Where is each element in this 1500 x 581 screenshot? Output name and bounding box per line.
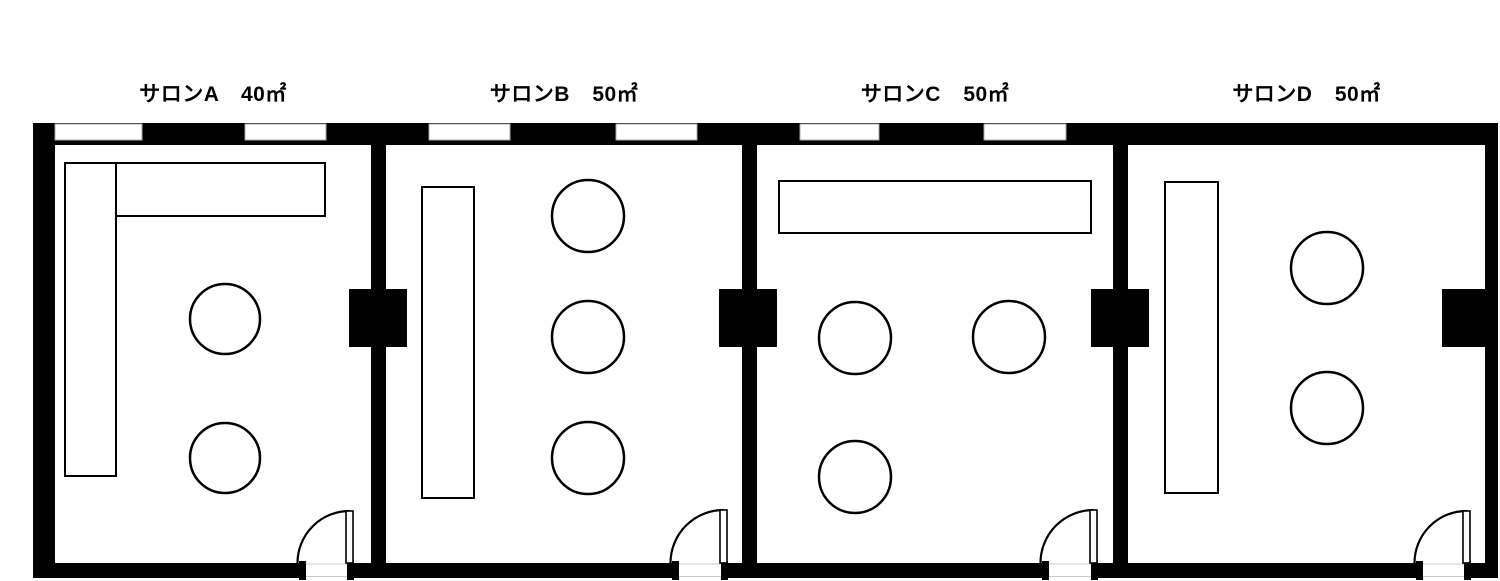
door-swing-arc [1415,511,1467,563]
counter-table [779,181,1091,233]
door-leaf [1090,510,1097,563]
round-table [1291,232,1363,304]
window [55,124,142,140]
round-table [1291,372,1363,444]
floor-plan-page: サロンA 40㎡ サロンB 50㎡ サロンC 50㎡ サロンD 50㎡ [0,0,1500,581]
door-jamb [347,561,354,580]
counter-table [65,163,116,476]
partition-connector [1091,289,1149,347]
partition-connector [349,289,407,347]
room-name: サロンA [139,83,218,106]
room-label-salon-b: サロンB 50㎡ [490,82,638,108]
door-jamb [1042,561,1049,580]
door-jamb [672,561,679,580]
room-name: サロンB [490,83,570,106]
room-label-salon-c: サロンC 50㎡ [861,82,1009,108]
door-jamb [721,561,728,580]
round-table [552,301,624,373]
door-jamb [299,561,306,580]
door-swing-arc [1041,510,1094,563]
round-table [190,284,260,354]
window [984,124,1066,140]
round-table [552,180,624,252]
door-swing-arc [298,511,350,563]
outer-wall-right [1485,123,1498,578]
room-name: サロンC [861,83,941,106]
door-jamb [1091,561,1098,580]
outer-wall-bottom [33,563,1498,578]
round-table [819,302,891,374]
door-leaf [720,510,727,563]
door-leaf [346,511,353,563]
window [245,124,326,140]
door-swing-arc [671,510,724,563]
partition-connector [1442,289,1485,347]
round-table [819,441,891,513]
counter-table [116,163,325,216]
room-area: 40㎡ [241,83,287,106]
room-area: 50㎡ [592,83,638,106]
round-table [190,423,260,493]
door-jamb [1416,561,1423,580]
window [429,124,510,140]
counter-table [422,187,474,498]
room-area: 50㎡ [963,83,1009,106]
door-jamb [1464,561,1471,580]
divider-wall [742,145,757,563]
window [616,124,697,140]
round-table [973,301,1045,373]
room-label-salon-a: サロンA 40㎡ [139,82,287,108]
door-leaf [1463,511,1470,563]
round-table [552,422,624,494]
partition-connector [719,289,777,347]
divider-wall [1113,145,1128,563]
room-area: 50㎡ [1335,83,1381,106]
room-name: サロンD [1232,83,1312,106]
room-label-salon-d: サロンD 50㎡ [1232,82,1380,108]
window [800,124,879,140]
divider-wall [371,145,386,563]
counter-table [1165,182,1218,493]
outer-wall-left [33,123,55,578]
